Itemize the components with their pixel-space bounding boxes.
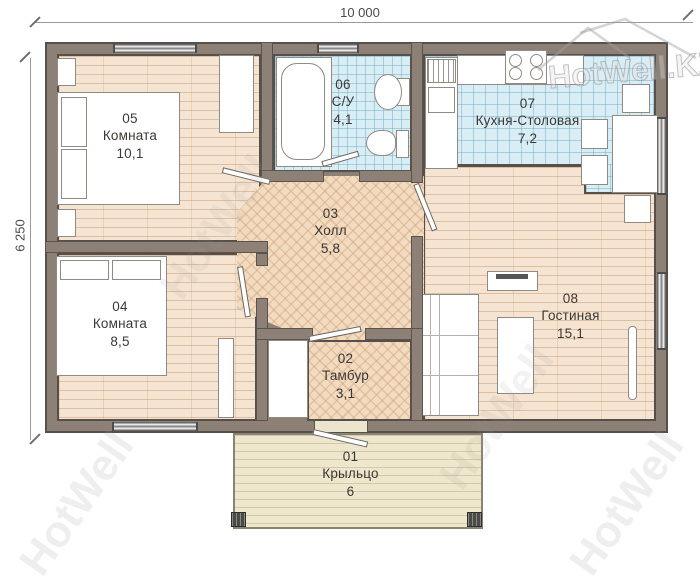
wall-06-07 [411, 42, 423, 183]
room-label-04: 04 Комната 8,5 [75, 298, 165, 350]
stove-burner [509, 54, 522, 67]
room-label-01: 01 Крыльцо 6 [298, 448, 403, 500]
room-area: 3,1 [303, 385, 388, 402]
closet-tambur [268, 340, 308, 418]
room-label-08: 08 Гостиная 15,1 [518, 290, 623, 342]
tv [496, 274, 528, 279]
room-area: 5,8 [288, 240, 373, 257]
room-label-07: 07 Кухня-Столовая 7,2 [445, 95, 610, 147]
room-number: 04 [75, 298, 165, 315]
sofa-line [439, 295, 440, 415]
window-room04 [112, 422, 198, 431]
plan-canvas: 10 000 6 250 [0, 0, 700, 557]
dish-rack [427, 59, 456, 83]
room-number: 01 [298, 448, 403, 465]
room-area: 6 [298, 483, 403, 500]
wardrobe-room04 [218, 338, 234, 418]
room-number: 07 [445, 95, 610, 112]
room-area: 4,1 [303, 111, 383, 128]
wall-05-04 [45, 241, 268, 253]
room-number: 08 [518, 290, 623, 307]
room-area: 15,1 [518, 325, 623, 342]
radiator [628, 326, 637, 400]
porch-post [467, 512, 482, 527]
pillow [61, 149, 87, 199]
room-label-02: 02 Тамбур 3,1 [303, 350, 388, 402]
room-name: Гостиная [518, 307, 623, 324]
dimension-tick [29, 433, 40, 444]
room-number: 05 [85, 110, 175, 127]
room-area: 8,5 [75, 333, 165, 350]
wardrobe-room05 [219, 55, 254, 133]
window-bathroom [317, 44, 359, 53]
watermark-text: HotWell [10, 423, 144, 585]
wall-tambur-right [411, 328, 423, 421]
floor-plan-page: { "plan": { "dimensions": { "width_label… [0, 0, 700, 557]
watermark-text: HotWell [560, 423, 694, 585]
porch-post [231, 512, 246, 527]
toilet-bowl [366, 130, 396, 156]
sofa [422, 294, 479, 416]
dimension-line-left [30, 58, 31, 440]
pillow [60, 260, 109, 280]
stove-burner [509, 67, 522, 80]
room-name: Комната [75, 315, 165, 332]
window-living-right [657, 272, 666, 350]
nightstand [57, 209, 76, 237]
pillow [61, 97, 87, 147]
room-name: Кухня-Столовая [445, 112, 610, 129]
nightstand [57, 58, 76, 86]
sofa-line [423, 335, 478, 336]
chair [581, 155, 608, 185]
room-number: 03 [288, 205, 373, 222]
sofa-line [423, 375, 478, 376]
toilet-tank [396, 130, 409, 158]
room-label-05: 05 Комната 10,1 [85, 110, 175, 162]
wall-04-right [256, 298, 268, 421]
chair [624, 195, 651, 223]
room-label-03: 03 Холл 5,8 [288, 205, 373, 257]
room-name: Холл [288, 222, 373, 239]
wall-05-04-stub [256, 253, 268, 266]
room-name: Комната [85, 127, 175, 144]
wall-hall-living [411, 236, 423, 330]
room-name: С/У [303, 93, 383, 110]
room-number: 06 [303, 76, 383, 93]
sofa-line [430, 295, 431, 415]
room-name: Тамбур [303, 367, 388, 384]
dimension-height-label: 6 250 [13, 206, 28, 266]
watermark-house-icon [530, 16, 700, 74]
room-number: 02 [303, 350, 388, 367]
pillow [112, 260, 161, 280]
window-room05 [113, 44, 197, 53]
room-area: 7,2 [445, 130, 610, 147]
room-name: Крыльцо [298, 465, 403, 482]
room-label-06: 06 С/У 4,1 [303, 76, 383, 128]
chair [622, 84, 650, 113]
window-kitchen-right [657, 117, 666, 195]
wall-tambur-top-left [256, 328, 313, 340]
dimension-tick [19, 51, 30, 62]
room-area: 10,1 [85, 145, 175, 162]
dining-table [612, 115, 658, 193]
wall-05-06 [261, 42, 273, 178]
dimension-width-label: 10 000 [320, 5, 400, 20]
